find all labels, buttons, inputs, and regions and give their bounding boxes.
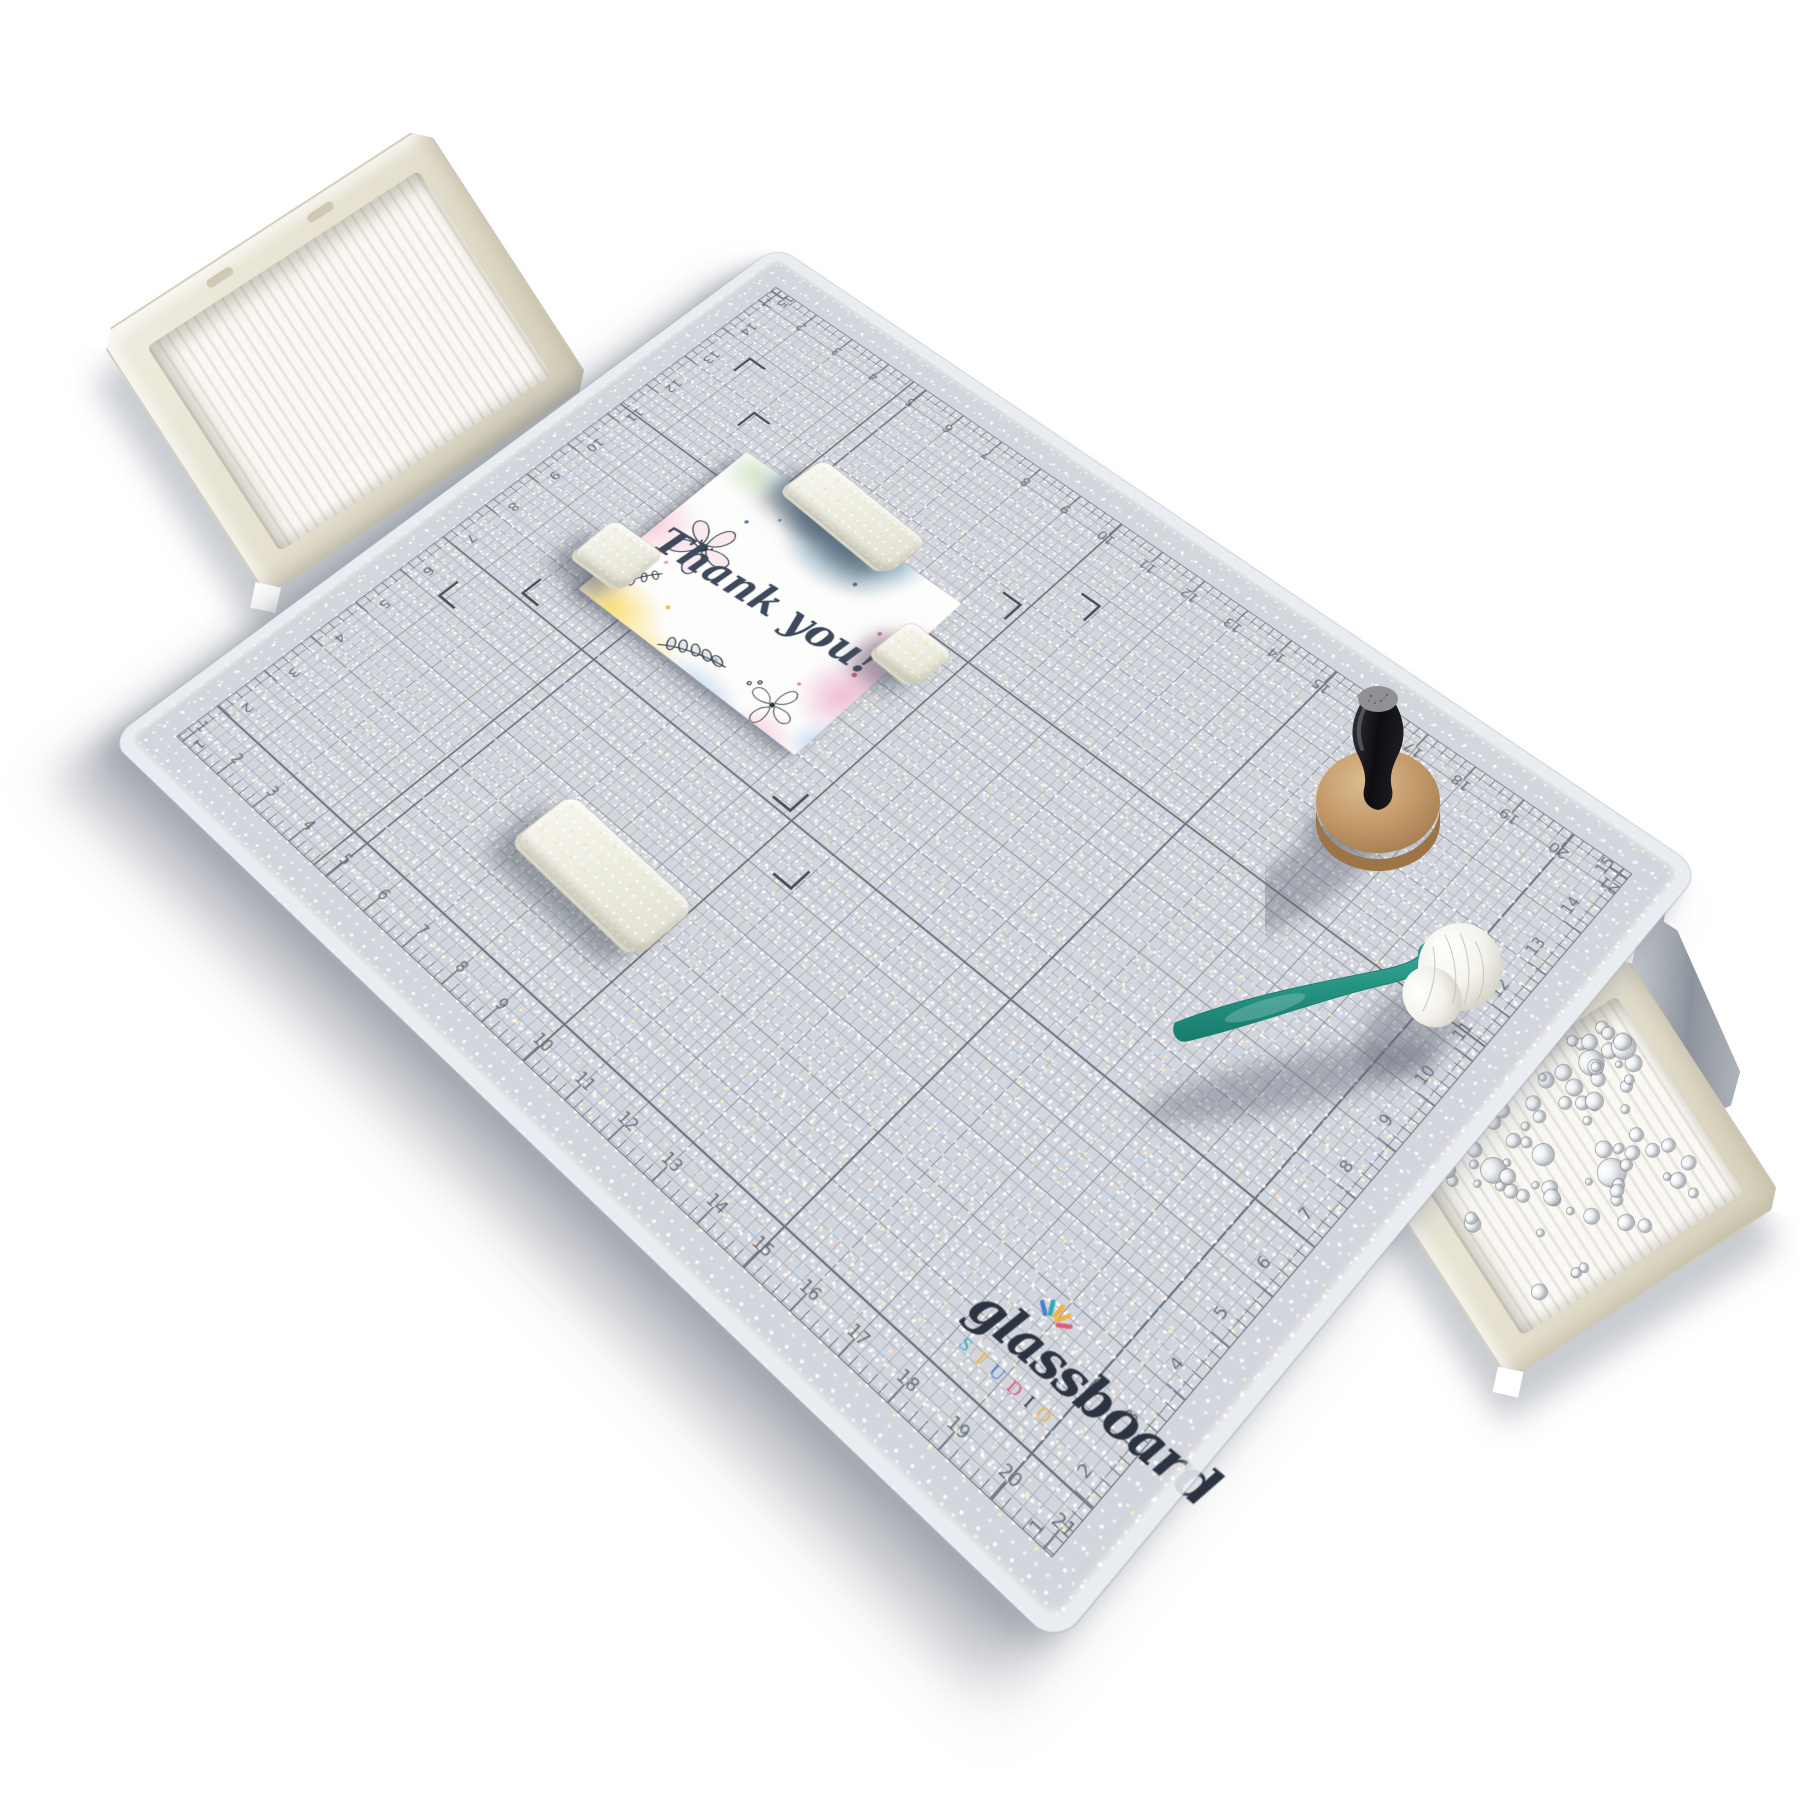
rhinestone — [1531, 1181, 1540, 1190]
rhinestone — [1585, 1178, 1593, 1186]
tray-vent-slot — [305, 200, 335, 224]
berry-dot — [757, 680, 762, 684]
rhinestone — [1563, 1077, 1585, 1099]
tray-corner-notch — [80, 320, 111, 351]
rhinestone — [1581, 1206, 1602, 1227]
rhinestone — [1627, 1126, 1645, 1144]
rhinestone — [1612, 1142, 1625, 1155]
rhinestone — [1688, 1187, 1700, 1199]
tray-corner-notch — [1771, 1186, 1800, 1217]
berry-dot — [747, 681, 752, 685]
rhinestone — [1582, 1116, 1593, 1127]
tray-corner-notch — [409, 107, 440, 138]
rhinestone — [1583, 1090, 1606, 1113]
brush-graphic — [1115, 895, 1545, 1145]
craft-brush — [1115, 895, 1545, 1145]
rhinestone — [1468, 1159, 1479, 1170]
product-photo-scene: 1122334455667788991010111112121313141415… — [0, 0, 1800, 1800]
tray-corner-notch — [250, 582, 281, 613]
rhinestone — [1473, 1179, 1482, 1188]
rhinestone — [1643, 1141, 1662, 1160]
rhinestone — [1668, 1170, 1689, 1191]
rhinestone — [1536, 1228, 1545, 1237]
glint — [1434, 939, 1441, 946]
rhinestone — [1615, 1212, 1637, 1234]
rhinestone — [1557, 1094, 1574, 1111]
tray-vent-slot — [205, 265, 235, 289]
rhinestone — [1620, 1104, 1631, 1115]
rhinestone — [1680, 1154, 1698, 1172]
tray-corner-notch — [1493, 1367, 1524, 1398]
rhinestone — [1566, 1206, 1576, 1216]
stamp-handle-cap — [1358, 686, 1398, 712]
rhinestone — [1529, 1281, 1550, 1302]
rhinestone — [1636, 1217, 1654, 1235]
rhinestone — [1660, 1137, 1677, 1154]
rhinestone — [1614, 1060, 1623, 1069]
